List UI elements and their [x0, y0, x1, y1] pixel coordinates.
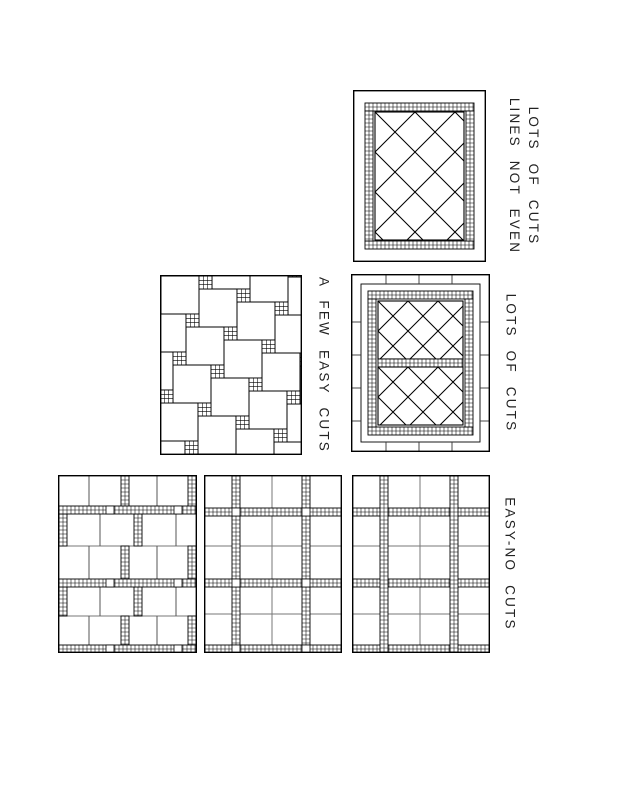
pattern-diagonal-mosaic-border: [353, 90, 486, 262]
label-a-few-easy-cuts: A FEW EASY CUTS: [315, 277, 334, 453]
pattern-staggered-grid-drawing: [58, 475, 197, 653]
pattern-grid-open-intersections-drawing: [204, 475, 342, 653]
page: LOTS OF CUTS LINES NOT EVEN A FEW EASY C…: [0, 0, 618, 800]
label-easy-no-cuts: EASY-NO CUTS: [501, 497, 520, 630]
pattern-hopscotch-pinwheel: [160, 275, 302, 455]
label-line-lines-not-even: LINES NOT EVEN: [505, 98, 524, 254]
pattern-grid-mosaic-strips-open-intersections: [204, 475, 342, 653]
pattern-hopscotch-pinwheel-drawing: [160, 275, 302, 455]
label-line-lots-of-cuts: LOTS OF CUTS: [524, 98, 543, 254]
label-lots-of-cuts-lines-not-even: LOTS OF CUTS LINES NOT EVEN: [505, 98, 543, 254]
pattern-double-diagonal-panels-drawing: [351, 274, 490, 452]
pattern-grid-mosaic-strips-crossing: [352, 475, 490, 653]
pattern-grid-crossing-drawing: [352, 475, 490, 653]
pattern-diagonal-mosaic-border-drawing: [353, 90, 486, 262]
label-lots-of-cuts: LOTS OF CUTS: [502, 294, 521, 433]
pattern-staggered-grid-mosaic-strips: [58, 475, 197, 653]
pattern-double-diagonal-panels: [351, 274, 490, 452]
